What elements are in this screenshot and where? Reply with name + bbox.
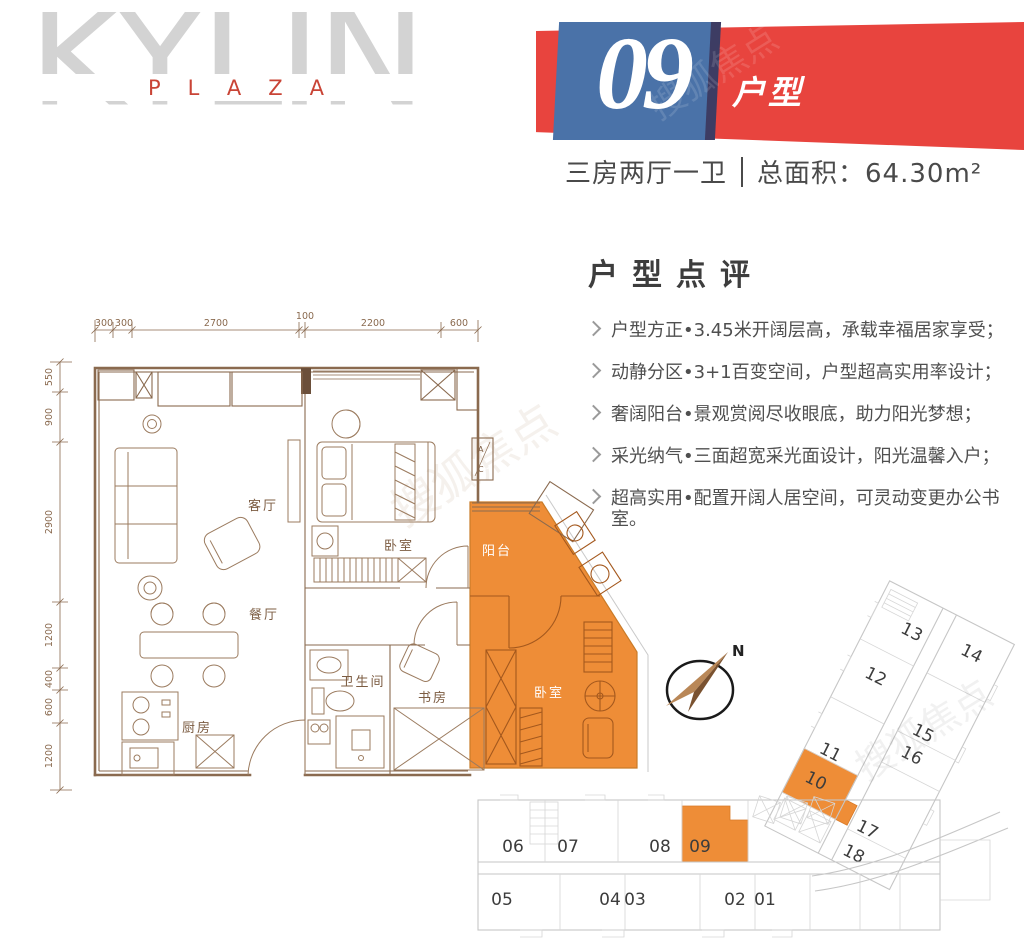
unit-number-18: 18 [839,841,867,869]
dim-label: 300 [115,318,133,329]
unit-number-17: 17 [853,816,881,844]
dim-label: 550 [44,368,55,386]
ac-platform: A C [472,438,493,480]
dim-label: 400 [44,670,55,688]
dim-label: 900 [44,408,55,426]
dim-label: 2200 [361,318,385,329]
dim-label: 300 [95,318,113,329]
unit-number-07: 07 [557,837,579,857]
dim-label: 600 [44,698,55,716]
flyer-page: { "logo": { "title": "KYLIN", "subtitle"… [0,0,1024,941]
unit-number-01: 01 [754,890,776,910]
room-label-bathroom: 卫生间 [340,675,385,690]
unit-number-02: 02 [724,890,746,910]
unit-number-05: 05 [491,890,513,910]
compass-north-label: N [732,642,745,660]
unit-number-06: 06 [502,837,524,857]
room-label-dining: 餐厅 [249,607,279,623]
room-label-living: 客厅 [248,498,278,514]
unit-number-08: 08 [649,837,671,857]
room-label-study: 书房 [418,690,448,706]
unit-number-13: 13 [897,619,925,647]
dim-label: 2900 [44,510,55,534]
dim-label: 2700 [204,318,228,329]
compass: N [666,642,745,719]
room-label-kitchen: 厨房 [182,720,212,736]
dim-label: 600 [450,318,468,329]
dim-label: 1200 [44,744,55,768]
unit-number-16: 16 [897,742,925,770]
site-plan-tilted-wing: 13 12 11 10 14 15 16 17 18 [761,579,1018,891]
unit-number-03: 03 [624,890,646,910]
drawings-canvas: 300 300 2700 100 2200 600 550 900 2900 1… [0,0,1024,941]
room-label-second-bedroom: 卧室 [534,685,564,701]
dimension-top: 300 300 2700 100 2200 600 [92,311,482,342]
dim-label: 1200 [44,623,55,647]
floorplan: 300 300 2700 100 2200 600 550 900 2900 1… [44,311,648,794]
dimension-left: 550 900 2900 1200 400 600 1200 [44,359,72,794]
bathroom-furniture [308,650,384,768]
ac-label-c: C [478,465,484,474]
unit-number-15: 15 [909,720,937,748]
master-bedroom-furniture [312,410,468,588]
unit-number-09: 09 [689,837,711,857]
kitchen-furniture [122,692,305,775]
site-plan-bottom-wing: 06 07 08 09 05 04 03 02 01 [478,781,1008,937]
ac-label-a: A [478,445,484,454]
unit-number-04: 04 [599,890,621,910]
unit-number-12: 12 [861,663,889,691]
dim-label: 100 [296,311,314,322]
dining-furniture [140,603,238,687]
outer-wall [95,368,478,775]
room-label-master-bedroom: 卧室 [384,538,414,554]
room-label-balcony: 阳台 [482,544,512,559]
highlighted-annex: 阳台 卧室 [470,482,648,772]
unit-number-14: 14 [957,640,985,668]
